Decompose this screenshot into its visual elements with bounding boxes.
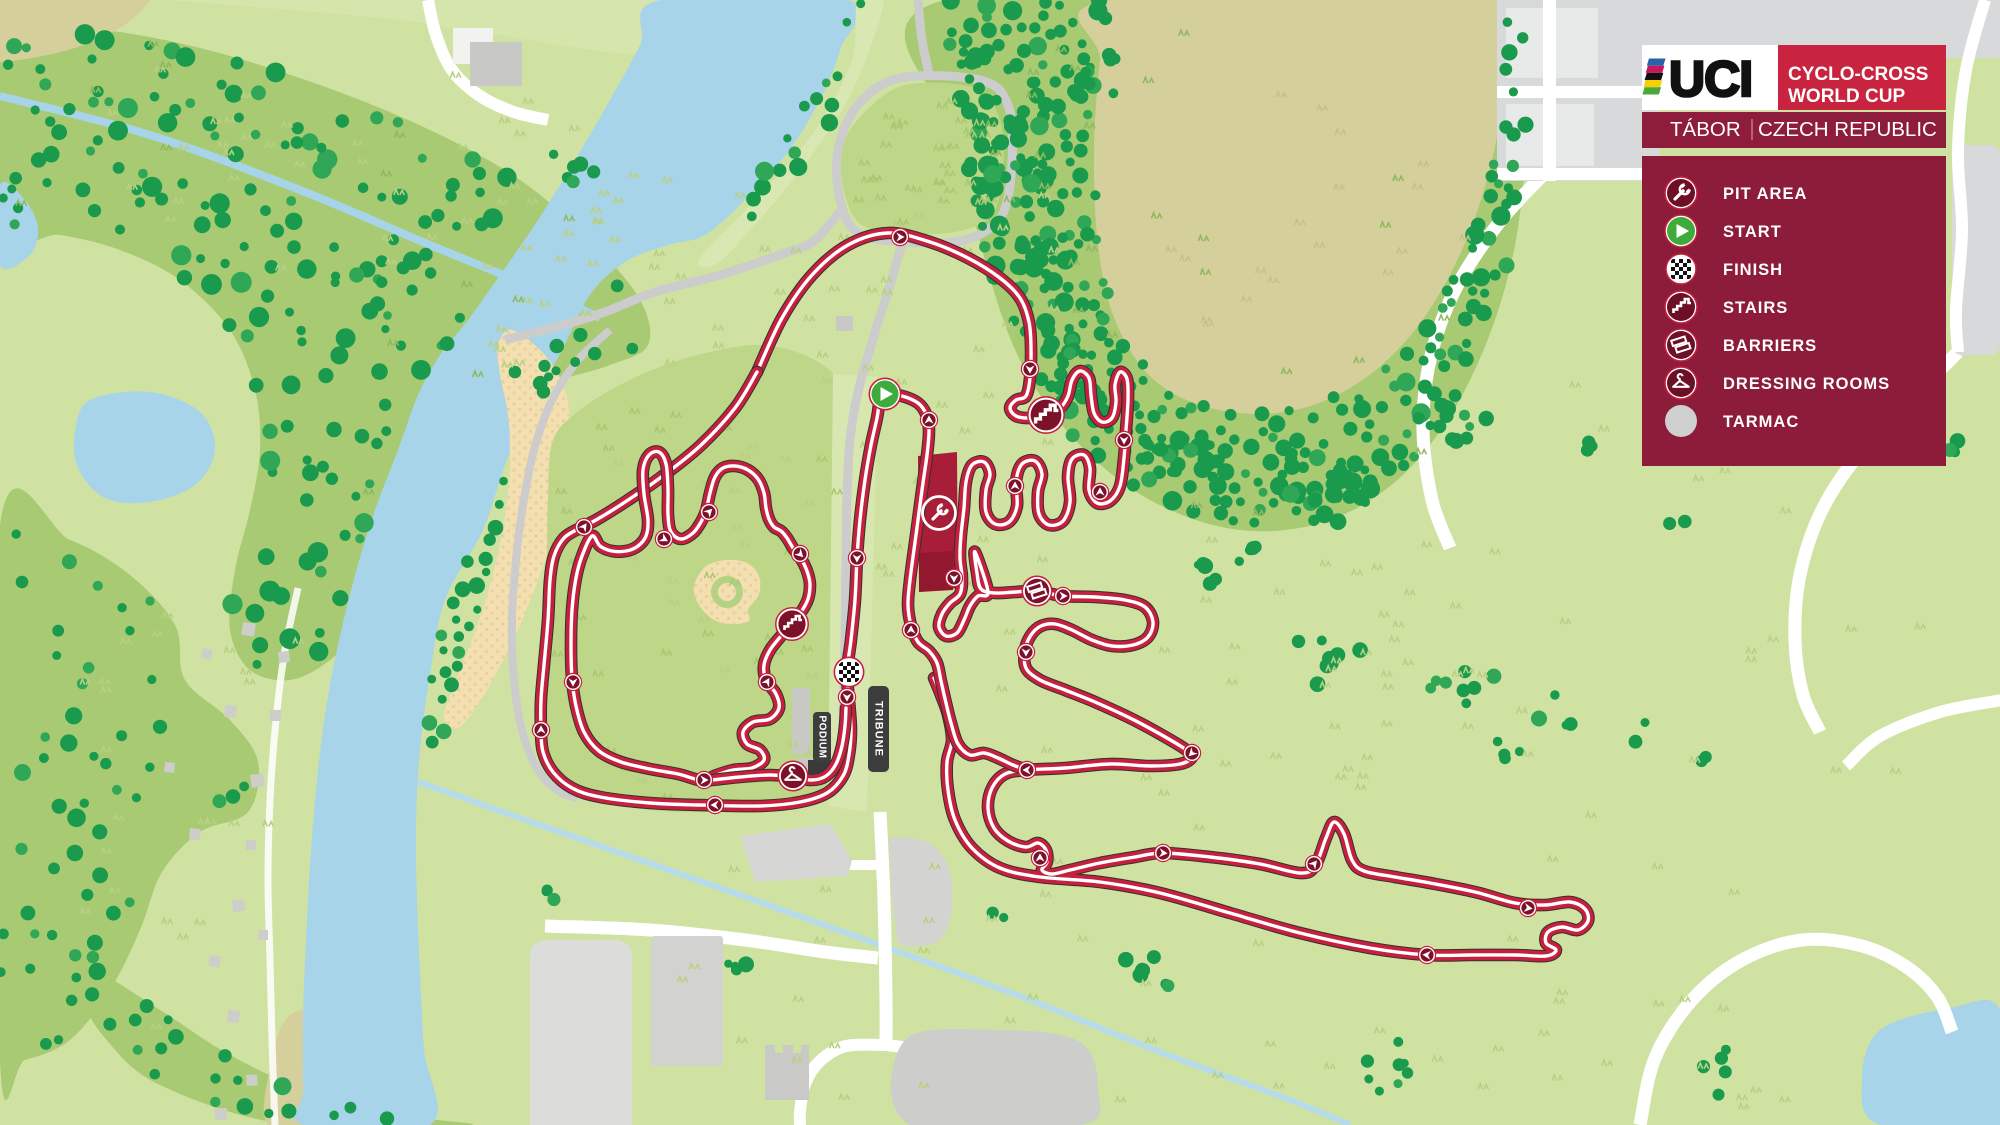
svg-text:DRESSING ROOMS: DRESSING ROOMS (1723, 375, 1890, 393)
svg-text:WORLD CUP: WORLD CUP (1788, 86, 1905, 107)
svg-text:TRIBUNE: TRIBUNE (873, 701, 885, 757)
svg-text:PIT AREA: PIT AREA (1723, 185, 1807, 203)
svg-text:UCI: UCI (1669, 51, 1752, 107)
svg-text:STAIRS: STAIRS (1723, 299, 1788, 317)
svg-text:PODIUM: PODIUM (816, 716, 827, 759)
svg-text:FINISH: FINISH (1723, 261, 1783, 279)
svg-text:TARMAC: TARMAC (1723, 413, 1799, 431)
svg-text:BARRIERS: BARRIERS (1723, 337, 1817, 355)
svg-text:TÁBOR: TÁBOR (1670, 118, 1741, 141)
svg-text:CYCLO-CROSS: CYCLO-CROSS (1788, 64, 1928, 85)
svg-text:START: START (1723, 223, 1782, 241)
svg-text:CZECH REPUBLIC: CZECH REPUBLIC (1758, 118, 1937, 141)
